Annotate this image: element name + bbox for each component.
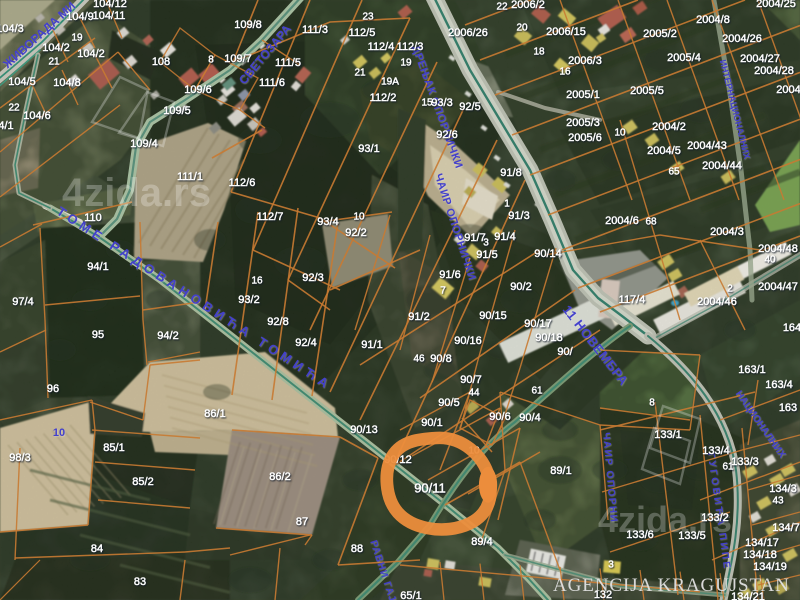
svg-text:1: 1 [504, 199, 510, 210]
svg-text:86/2: 86/2 [269, 471, 290, 483]
svg-text:134/17: 134/17 [745, 537, 779, 549]
svg-text:90/8: 90/8 [430, 353, 451, 365]
svg-text:16: 16 [559, 67, 571, 78]
svg-text:90/17: 90/17 [524, 318, 552, 330]
svg-text:46: 46 [413, 354, 425, 365]
svg-text:2004/25: 2004/25 [756, 0, 796, 10]
svg-text:104/9: 104/9 [66, 11, 94, 23]
svg-text:AGENCIJA KRAGUJSTAN: AGENCIJA KRAGUJSTAN [553, 575, 790, 596]
svg-text:91/4: 91/4 [494, 231, 515, 243]
svg-text:23: 23 [362, 12, 374, 23]
svg-text:117/4: 117/4 [619, 294, 646, 306]
svg-text:112/3: 112/3 [397, 41, 424, 53]
svg-text:86/1: 86/1 [204, 408, 225, 420]
svg-text:134/3: 134/3 [769, 483, 797, 495]
svg-text:104/5: 104/5 [8, 76, 36, 88]
svg-text:90/: 90/ [557, 346, 573, 358]
svg-text:2006/2: 2006/2 [511, 0, 545, 11]
svg-text:134/19: 134/19 [753, 561, 787, 573]
svg-text:109/5: 109/5 [163, 105, 191, 117]
svg-text:20: 20 [516, 23, 528, 34]
svg-text:93/1: 93/1 [358, 143, 379, 155]
svg-text:84: 84 [91, 543, 103, 555]
svg-text:93/4: 93/4 [317, 216, 338, 228]
svg-text:19A: 19A [381, 77, 399, 88]
svg-text:91/6: 91/6 [439, 269, 460, 281]
svg-text:19: 19 [71, 33, 83, 44]
svg-text:2004/46: 2004/46 [697, 296, 737, 308]
svg-text:109/4: 109/4 [130, 138, 158, 150]
svg-text:133/3: 133/3 [731, 456, 759, 468]
svg-text:2005/3: 2005/3 [566, 117, 600, 129]
svg-text:133/4: 133/4 [702, 445, 730, 457]
svg-text:95: 95 [92, 329, 104, 341]
svg-text:22: 22 [8, 103, 20, 114]
svg-text:85/2: 85/2 [132, 476, 153, 488]
svg-text:134/7: 134/7 [772, 522, 800, 534]
svg-text:112/7: 112/7 [257, 211, 284, 223]
svg-text:108: 108 [152, 56, 170, 68]
svg-text:88: 88 [351, 543, 363, 555]
svg-text:87: 87 [296, 516, 308, 528]
svg-text:3: 3 [483, 238, 489, 249]
svg-text:2004/6: 2004/6 [605, 215, 639, 227]
svg-text:16: 16 [251, 276, 263, 287]
svg-text:2005/2: 2005/2 [643, 28, 677, 40]
svg-text:19: 19 [400, 58, 412, 69]
svg-text:90/7: 90/7 [460, 374, 481, 386]
svg-text:133/5: 133/5 [678, 530, 706, 542]
svg-text:104/8: 104/8 [53, 77, 81, 89]
svg-text:21: 21 [48, 57, 60, 68]
svg-text:96: 96 [47, 383, 59, 395]
svg-text:104/6: 104/6 [23, 110, 51, 122]
svg-text:133/1: 133/1 [654, 429, 682, 441]
svg-text:10: 10 [53, 427, 65, 439]
svg-text:104/3: 104/3 [0, 23, 24, 35]
svg-text:109/8: 109/8 [234, 19, 262, 31]
svg-text:98/3: 98/3 [9, 452, 30, 464]
svg-text:2006/15: 2006/15 [546, 26, 586, 38]
svg-text:91/1: 91/1 [361, 339, 382, 351]
svg-text:61: 61 [531, 386, 543, 397]
svg-text:91/2: 91/2 [408, 311, 429, 323]
svg-text:91/8: 91/8 [500, 167, 521, 179]
svg-text:91/5: 91/5 [476, 249, 497, 261]
svg-text:68: 68 [645, 217, 657, 228]
svg-text:90/15: 90/15 [479, 310, 507, 322]
svg-text:112/6: 112/6 [229, 177, 256, 189]
svg-text:15: 15 [421, 98, 433, 109]
svg-text:133/2: 133/2 [701, 512, 729, 524]
svg-text:2004/43: 2004/43 [687, 140, 727, 152]
svg-text:2005/1: 2005/1 [566, 89, 600, 101]
svg-text:2004/: 2004/ [776, 84, 800, 96]
svg-text:94/2: 94/2 [157, 330, 178, 342]
svg-text:110: 110 [84, 212, 102, 224]
svg-text:21: 21 [354, 68, 366, 79]
svg-text:40: 40 [764, 255, 776, 266]
svg-text:90/16: 90/16 [454, 335, 482, 347]
svg-text:92/4: 92/4 [295, 337, 316, 349]
svg-text:44: 44 [468, 388, 480, 399]
svg-text:8: 8 [208, 55, 214, 66]
svg-text:10: 10 [614, 128, 626, 139]
svg-text:90/2: 90/2 [510, 281, 531, 293]
svg-text:10: 10 [353, 212, 365, 223]
svg-text:7: 7 [440, 286, 446, 297]
svg-text:4/1: 4/1 [0, 120, 14, 132]
svg-text:90/6: 90/6 [489, 411, 510, 423]
svg-text:90/4: 90/4 [519, 412, 540, 424]
svg-text:22: 22 [496, 2, 508, 13]
svg-text:111/1: 111/1 [177, 171, 203, 183]
svg-text:2005/6: 2005/6 [568, 132, 602, 144]
svg-text:89/4: 89/4 [471, 536, 492, 548]
svg-text:2004/5: 2004/5 [647, 145, 681, 157]
svg-text:93/3: 93/3 [431, 97, 452, 109]
svg-text:112/5: 112/5 [349, 27, 376, 39]
svg-text:2004/28: 2004/28 [754, 65, 794, 77]
svg-text:112/2: 112/2 [370, 92, 397, 104]
svg-text:3: 3 [608, 560, 614, 571]
svg-text:163: 163 [779, 402, 797, 414]
svg-text:104/12: 104/12 [93, 0, 127, 10]
svg-text:94/1: 94/1 [87, 261, 108, 273]
svg-text:2004/48: 2004/48 [758, 243, 798, 255]
svg-text:104/11: 104/11 [93, 10, 126, 22]
svg-text:83: 83 [134, 576, 146, 588]
svg-text:164: 164 [783, 322, 800, 334]
svg-text:90/13: 90/13 [350, 424, 378, 436]
svg-text:111/6: 111/6 [259, 77, 285, 89]
svg-text:93/2: 93/2 [238, 294, 259, 306]
svg-text:2004/44: 2004/44 [702, 160, 742, 172]
svg-text:2: 2 [727, 284, 733, 295]
svg-text:92/6: 92/6 [436, 129, 457, 141]
svg-text:92/2: 92/2 [345, 227, 366, 239]
svg-text:97/4: 97/4 [12, 296, 33, 308]
svg-text:18: 18 [533, 47, 545, 58]
svg-text:111/5: 111/5 [275, 57, 301, 69]
svg-text:90/1: 90/1 [421, 417, 442, 429]
svg-text:2004/2: 2004/2 [652, 121, 686, 133]
svg-text:92/5: 92/5 [459, 101, 480, 113]
svg-text:2004/47: 2004/47 [758, 281, 798, 293]
svg-text:134/18: 134/18 [743, 549, 777, 561]
svg-text:91/3: 91/3 [508, 210, 529, 222]
svg-text:43: 43 [772, 496, 784, 507]
svg-text:2005/4: 2005/4 [667, 52, 701, 64]
svg-text:2006/26: 2006/26 [448, 27, 488, 39]
svg-text:2006/3: 2006/3 [568, 55, 602, 67]
svg-text:8: 8 [649, 398, 655, 409]
svg-text:104/2: 104/2 [42, 42, 70, 54]
svg-text:112/4: 112/4 [368, 41, 395, 53]
svg-text:92/8: 92/8 [267, 316, 288, 328]
svg-text:109/6: 109/6 [184, 84, 212, 96]
svg-text:2004/26: 2004/26 [722, 33, 762, 45]
svg-text:163/4: 163/4 [765, 379, 793, 391]
svg-text:2005/5: 2005/5 [630, 85, 664, 97]
svg-text:65/1: 65/1 [400, 590, 421, 600]
svg-text:111/3: 111/3 [302, 24, 328, 36]
svg-text:90/11: 90/11 [414, 481, 446, 496]
svg-text:163/1: 163/1 [738, 364, 766, 376]
svg-text:133/6: 133/6 [626, 529, 654, 541]
svg-text:85/1: 85/1 [103, 442, 124, 454]
svg-text:2004/8: 2004/8 [696, 14, 730, 26]
svg-text:109/7: 109/7 [224, 53, 252, 65]
svg-text:104/2: 104/2 [77, 48, 105, 60]
svg-text:65: 65 [668, 167, 680, 178]
svg-text:90/5: 90/5 [438, 397, 459, 409]
svg-text:92/3: 92/3 [302, 272, 323, 284]
svg-text:90/18: 90/18 [535, 332, 563, 344]
svg-text:61: 61 [722, 462, 734, 473]
svg-text:89/1: 89/1 [550, 465, 571, 477]
svg-text:2004/3: 2004/3 [710, 226, 744, 238]
svg-text:90/14: 90/14 [534, 248, 562, 260]
svg-text:2004/27: 2004/27 [740, 53, 780, 65]
